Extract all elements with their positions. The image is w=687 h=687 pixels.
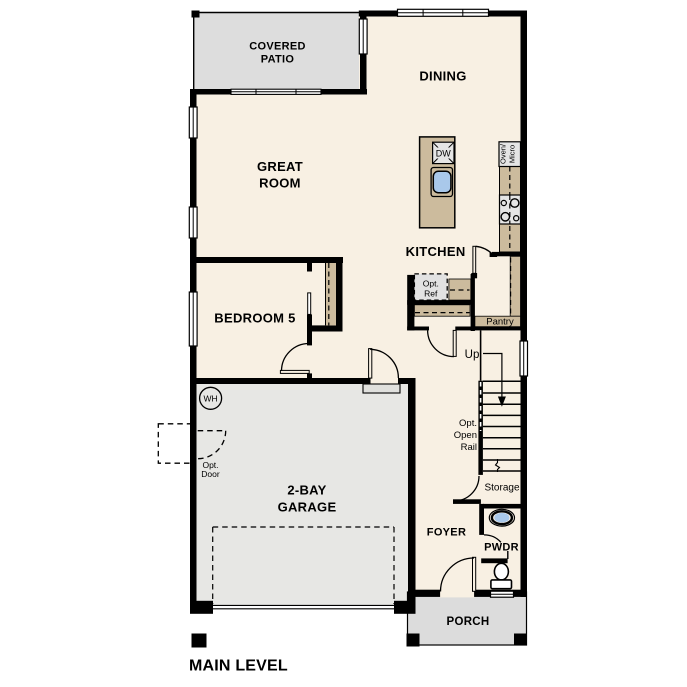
svg-text:BEDROOM 5: BEDROOM 5 <box>214 311 295 326</box>
svg-text:FOYER: FOYER <box>427 527 466 539</box>
svg-text:Storage: Storage <box>484 483 519 494</box>
svg-text:PORCH: PORCH <box>446 616 489 628</box>
svg-text:2-BAY: 2-BAY <box>287 483 326 498</box>
svg-text:Opt.: Opt. <box>459 418 477 429</box>
svg-text:Up: Up <box>465 349 480 361</box>
svg-text:Micro: Micro <box>508 145 517 163</box>
svg-text:Oven/: Oven/ <box>499 143 508 164</box>
svg-text:GREAT: GREAT <box>257 159 303 174</box>
svg-text:KITCHEN: KITCHEN <box>406 244 466 259</box>
svg-text:Opt.: Opt. <box>423 279 439 289</box>
svg-text:Rail: Rail <box>461 442 477 453</box>
svg-text:DINING: DINING <box>419 69 466 84</box>
svg-text:MAIN LEVEL: MAIN LEVEL <box>189 658 288 675</box>
svg-text:Ref: Ref <box>424 289 438 299</box>
svg-text:COVERED: COVERED <box>249 41 306 53</box>
svg-text:PWDR: PWDR <box>484 542 519 554</box>
svg-text:Door: Door <box>201 469 220 479</box>
svg-text:ROOM: ROOM <box>259 176 301 191</box>
svg-text:Pantry: Pantry <box>486 317 514 328</box>
svg-text:GARAGE: GARAGE <box>278 500 337 515</box>
svg-text:PATIO: PATIO <box>261 54 295 66</box>
svg-text:DW: DW <box>436 149 451 159</box>
svg-text:Open: Open <box>454 430 477 441</box>
svg-text:WH: WH <box>204 393 218 403</box>
